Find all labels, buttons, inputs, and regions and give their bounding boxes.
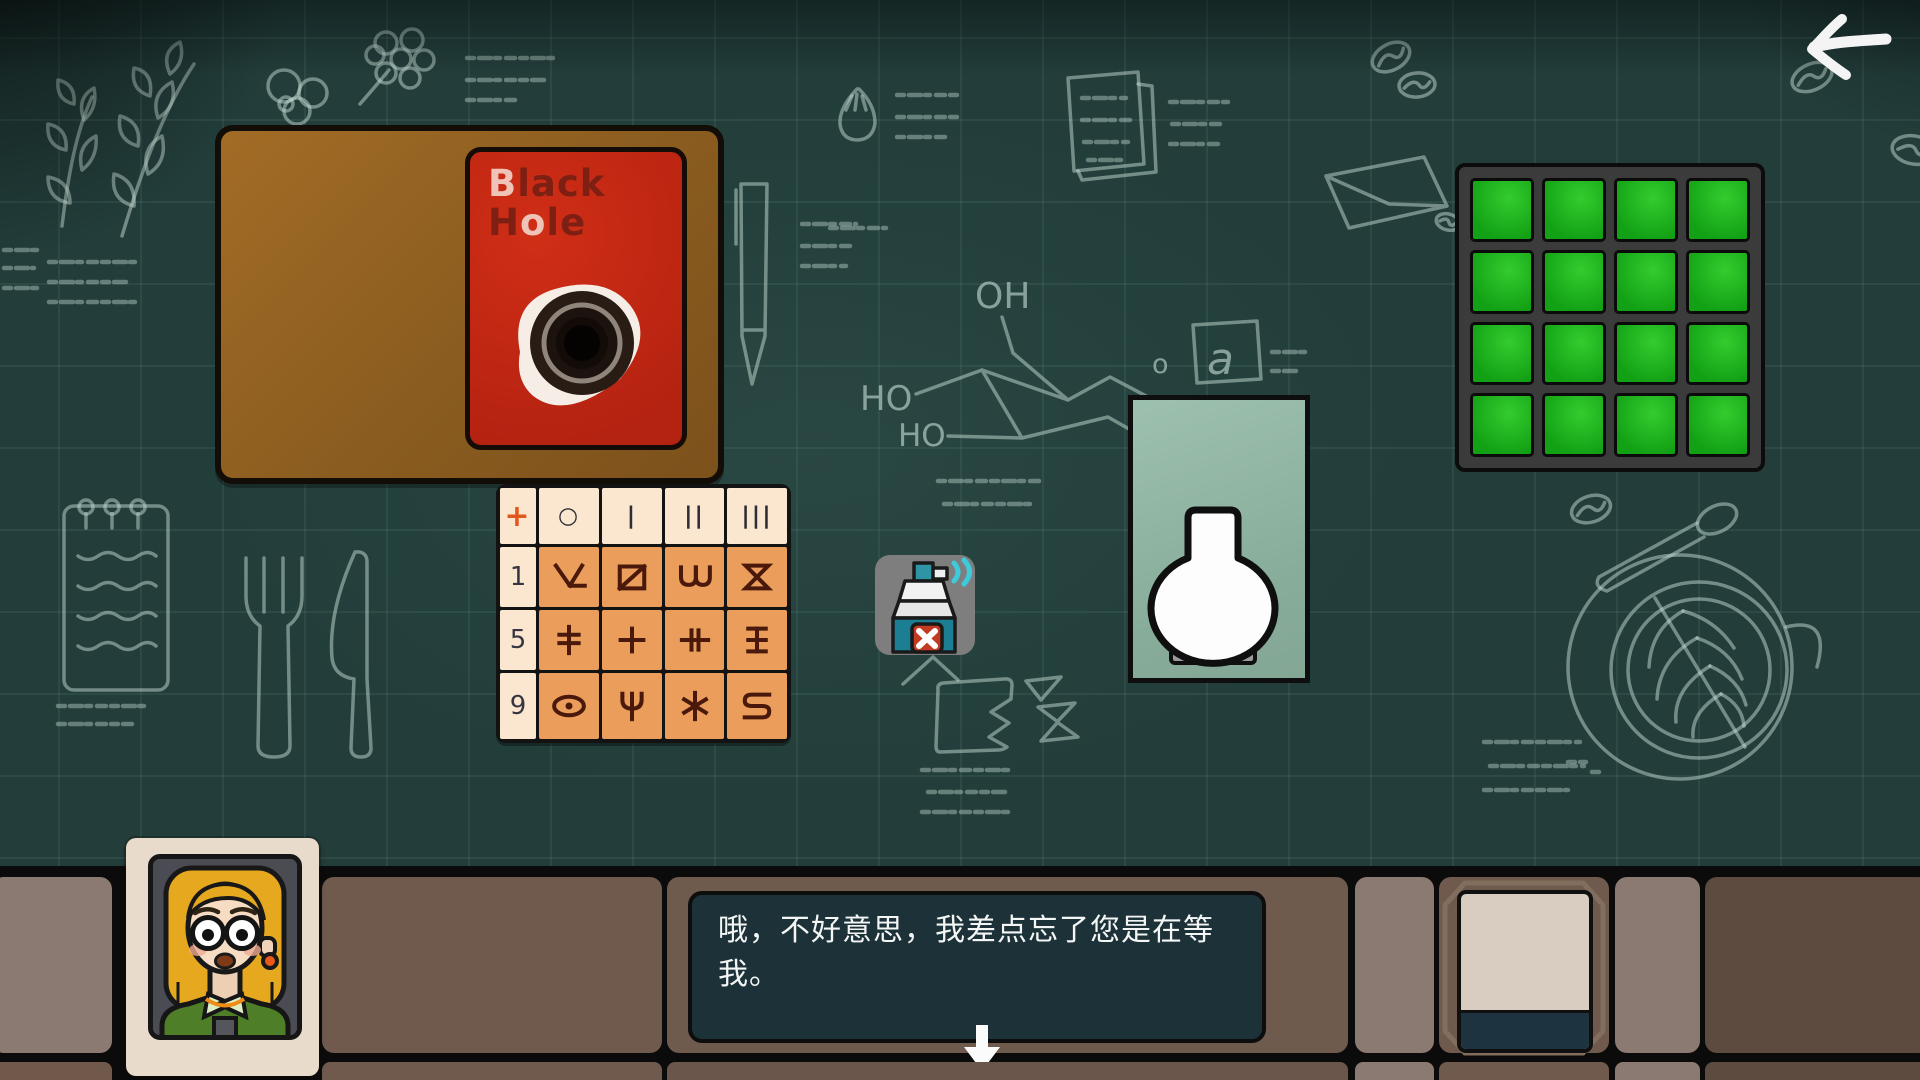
spray-mid xyxy=(893,601,955,618)
character-portrait xyxy=(148,854,302,1040)
hotbar-row2-tile[interactable] xyxy=(1615,1062,1700,1080)
hotbar-row2-tile[interactable] xyxy=(667,1062,1348,1080)
symbol-table[interactable]: +○||||||159 xyxy=(496,484,791,743)
green-grid-cell-12[interactable] xyxy=(1470,393,1534,457)
book-title-segment: o xyxy=(520,201,546,244)
hotbar-tile-6[interactable] xyxy=(1705,877,1920,1053)
table-cell-double-bar-cross xyxy=(539,610,599,670)
six-spoke-star-symbol xyxy=(674,685,716,727)
placket xyxy=(214,1018,236,1040)
wooden-board: BlackHole xyxy=(215,125,724,484)
square-s-symbol xyxy=(736,685,778,727)
hotbar-row2-tile[interactable] xyxy=(1705,1062,1920,1080)
vase-body xyxy=(1151,510,1275,663)
trident-cup-symbol xyxy=(611,685,653,727)
portrait-frame xyxy=(148,854,302,1040)
mouth xyxy=(216,954,235,968)
table-row-label-9: 9 xyxy=(500,673,536,739)
dialogue-panel: 哦，不好意思，我差点忘了您是在等我。 xyxy=(667,877,1348,1053)
black-hole-book[interactable]: BlackHole xyxy=(465,147,687,450)
chalk-ho1-label: HO xyxy=(860,379,912,419)
hotbar-row2-tile[interactable] xyxy=(322,1062,662,1080)
hotbar-row2-tile[interactable] xyxy=(1355,1062,1434,1080)
green-grid-cell-7[interactable] xyxy=(1686,250,1750,314)
table-cell-v-hook xyxy=(539,547,599,607)
chalk-ho2-label: HO xyxy=(898,418,946,454)
table-header-3: ||| xyxy=(727,488,787,544)
black-hole-illustration xyxy=(470,252,672,442)
hotbar-tile-2[interactable] xyxy=(322,877,662,1053)
table-cell-square-s xyxy=(727,673,787,739)
green-grid-cell-9[interactable] xyxy=(1542,322,1606,386)
table-cell-double-post-bar xyxy=(665,610,724,670)
table-cell-slashed-square xyxy=(602,547,662,607)
spray-cap xyxy=(914,563,933,581)
table-cell-pillar-three-bar xyxy=(727,610,787,670)
dialogue-box: 哦，不好意思，我差点忘了您是在等我。 xyxy=(688,891,1266,1043)
green-grid-cell-10[interactable] xyxy=(1614,322,1678,386)
slashed-square-symbol xyxy=(611,556,653,598)
hotbar-tile-1[interactable] xyxy=(0,877,112,1053)
table-row-label-5: 5 xyxy=(500,610,536,670)
table-header-0: ○ xyxy=(539,488,599,544)
plus-symbol xyxy=(611,619,653,661)
green-grid-cell-14[interactable] xyxy=(1614,393,1678,457)
table-cell-six-spoke-star xyxy=(665,673,724,739)
green-grid-cell-15[interactable] xyxy=(1686,393,1750,457)
vase-panel[interactable] xyxy=(1128,395,1310,683)
note-card[interactable] xyxy=(1457,890,1593,1053)
book-title: BlackHole xyxy=(488,164,605,242)
green-grid-cell-13[interactable] xyxy=(1542,393,1606,457)
green-grid-cell-11[interactable] xyxy=(1686,322,1750,386)
green-grid-cell-3[interactable] xyxy=(1686,178,1750,242)
hotbar-row2-tile[interactable] xyxy=(1439,1062,1609,1080)
green-grid-cell-6[interactable] xyxy=(1614,250,1678,314)
table-header-1: | xyxy=(602,488,662,544)
chalk-oh-label: OH xyxy=(975,276,1030,317)
pillar-three-bar-symbol xyxy=(736,619,778,661)
portrait-card xyxy=(126,838,319,1076)
double-post-bar-symbol xyxy=(674,619,716,661)
hotbar-row2-tile[interactable] xyxy=(0,1062,112,1080)
book-title-segment: H xyxy=(488,201,520,244)
back-button[interactable] xyxy=(1798,10,1898,82)
table-cell-hourglass xyxy=(727,547,787,607)
chalk-small-o: o xyxy=(1152,349,1169,380)
game-scene: OH HO HO a o xyxy=(0,0,1920,1080)
eye-symbol xyxy=(548,685,590,727)
book-title-segment: B xyxy=(488,162,517,205)
green-grid-cell-4[interactable] xyxy=(1470,250,1534,314)
pupil-right xyxy=(236,929,248,941)
spray-bottle-item[interactable] xyxy=(875,555,975,655)
table-cell-double-u xyxy=(665,547,724,607)
table-header-2: || xyxy=(665,488,724,544)
hourglass-symbol xyxy=(736,556,778,598)
hotbar-tile-5[interactable] xyxy=(1615,877,1700,1053)
white-vase xyxy=(1133,400,1295,668)
earring xyxy=(263,954,277,968)
table-row-label-1: 1 xyxy=(500,547,536,607)
green-grid-cell-8[interactable] xyxy=(1470,322,1534,386)
hotbar-tile-3[interactable] xyxy=(1355,877,1434,1053)
green-grid-cell-2[interactable] xyxy=(1614,178,1678,242)
book-title-segment: le xyxy=(546,201,586,244)
table-cell-trident-cup xyxy=(602,673,662,739)
v-hook-symbol xyxy=(548,556,590,598)
spray-shoulder xyxy=(899,581,949,601)
note-card-strip xyxy=(1461,1010,1589,1049)
green-grid-cell-1[interactable] xyxy=(1542,178,1606,242)
book-title-segment: lack xyxy=(517,162,605,205)
dialogue-text: 哦，不好意思，我差点忘了您是在等我。 xyxy=(718,909,1248,997)
green-grid[interactable] xyxy=(1455,163,1765,472)
table-corner-plus: + xyxy=(500,488,536,544)
double-u-symbol xyxy=(674,556,716,598)
chalk-boxed-a: a xyxy=(1207,334,1234,385)
green-grid-cell-0[interactable] xyxy=(1470,178,1534,242)
pupil-left xyxy=(202,929,214,941)
double-bar-cross-symbol xyxy=(548,619,590,661)
green-grid-cell-5[interactable] xyxy=(1542,250,1606,314)
table-cell-plus xyxy=(602,610,662,670)
table-cell-eye xyxy=(539,673,599,739)
